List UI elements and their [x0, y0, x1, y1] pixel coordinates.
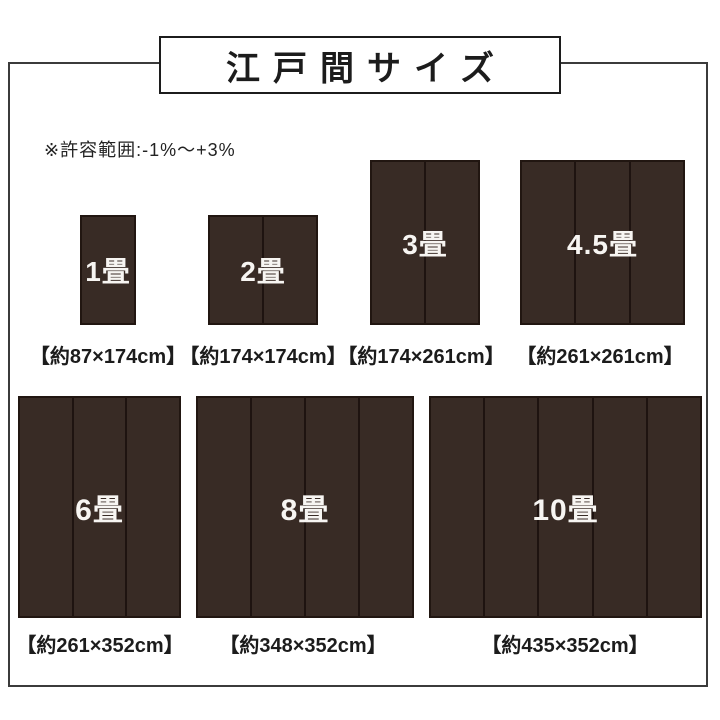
rug-dimension-label: 【約435×352cm】	[481, 629, 648, 658]
title-box: 江戸間サイズ	[159, 36, 561, 94]
rug-dimension-label: 【約174×261cm】	[337, 340, 504, 369]
tolerance-note: ※許容範囲:-1%～+3%	[44, 136, 236, 162]
rug-size-label: 3畳	[372, 162, 478, 323]
rug-1jo: 1畳	[80, 215, 136, 325]
rug-size-label: 8畳	[198, 398, 412, 616]
rug-dimension-label: 【約348×352cm】	[219, 629, 386, 658]
rug-dimension-label: 【約261×352cm】	[16, 629, 183, 658]
rug-10jo: 10畳	[429, 396, 702, 618]
rug-dimension-label: 【約174×174cm】	[179, 340, 346, 369]
rug-size-label: 1畳	[82, 217, 134, 323]
rug-3jo: 3畳	[370, 160, 480, 325]
page-title: 江戸間サイズ	[213, 41, 507, 90]
rug-6jo: 6畳	[18, 396, 181, 618]
rug-8jo: 8畳	[196, 396, 414, 618]
edoma-size-diagram: 江戸間サイズ ※許容範囲:-1%～+3% 1畳 【約87×174cm】 2畳 【…	[0, 0, 720, 720]
rug-dimension-label: 【約87×174cm】	[30, 340, 186, 369]
rug-size-label: 4.5畳	[522, 162, 683, 323]
rug-2jo: 2畳	[208, 215, 318, 325]
rug-size-label: 6畳	[20, 398, 179, 616]
rug-size-label: 10畳	[431, 398, 700, 616]
rug-size-label: 2畳	[210, 217, 316, 323]
rug-dimension-label: 【約261×261cm】	[516, 340, 683, 369]
rug-4-5jo: 4.5畳	[520, 160, 685, 325]
